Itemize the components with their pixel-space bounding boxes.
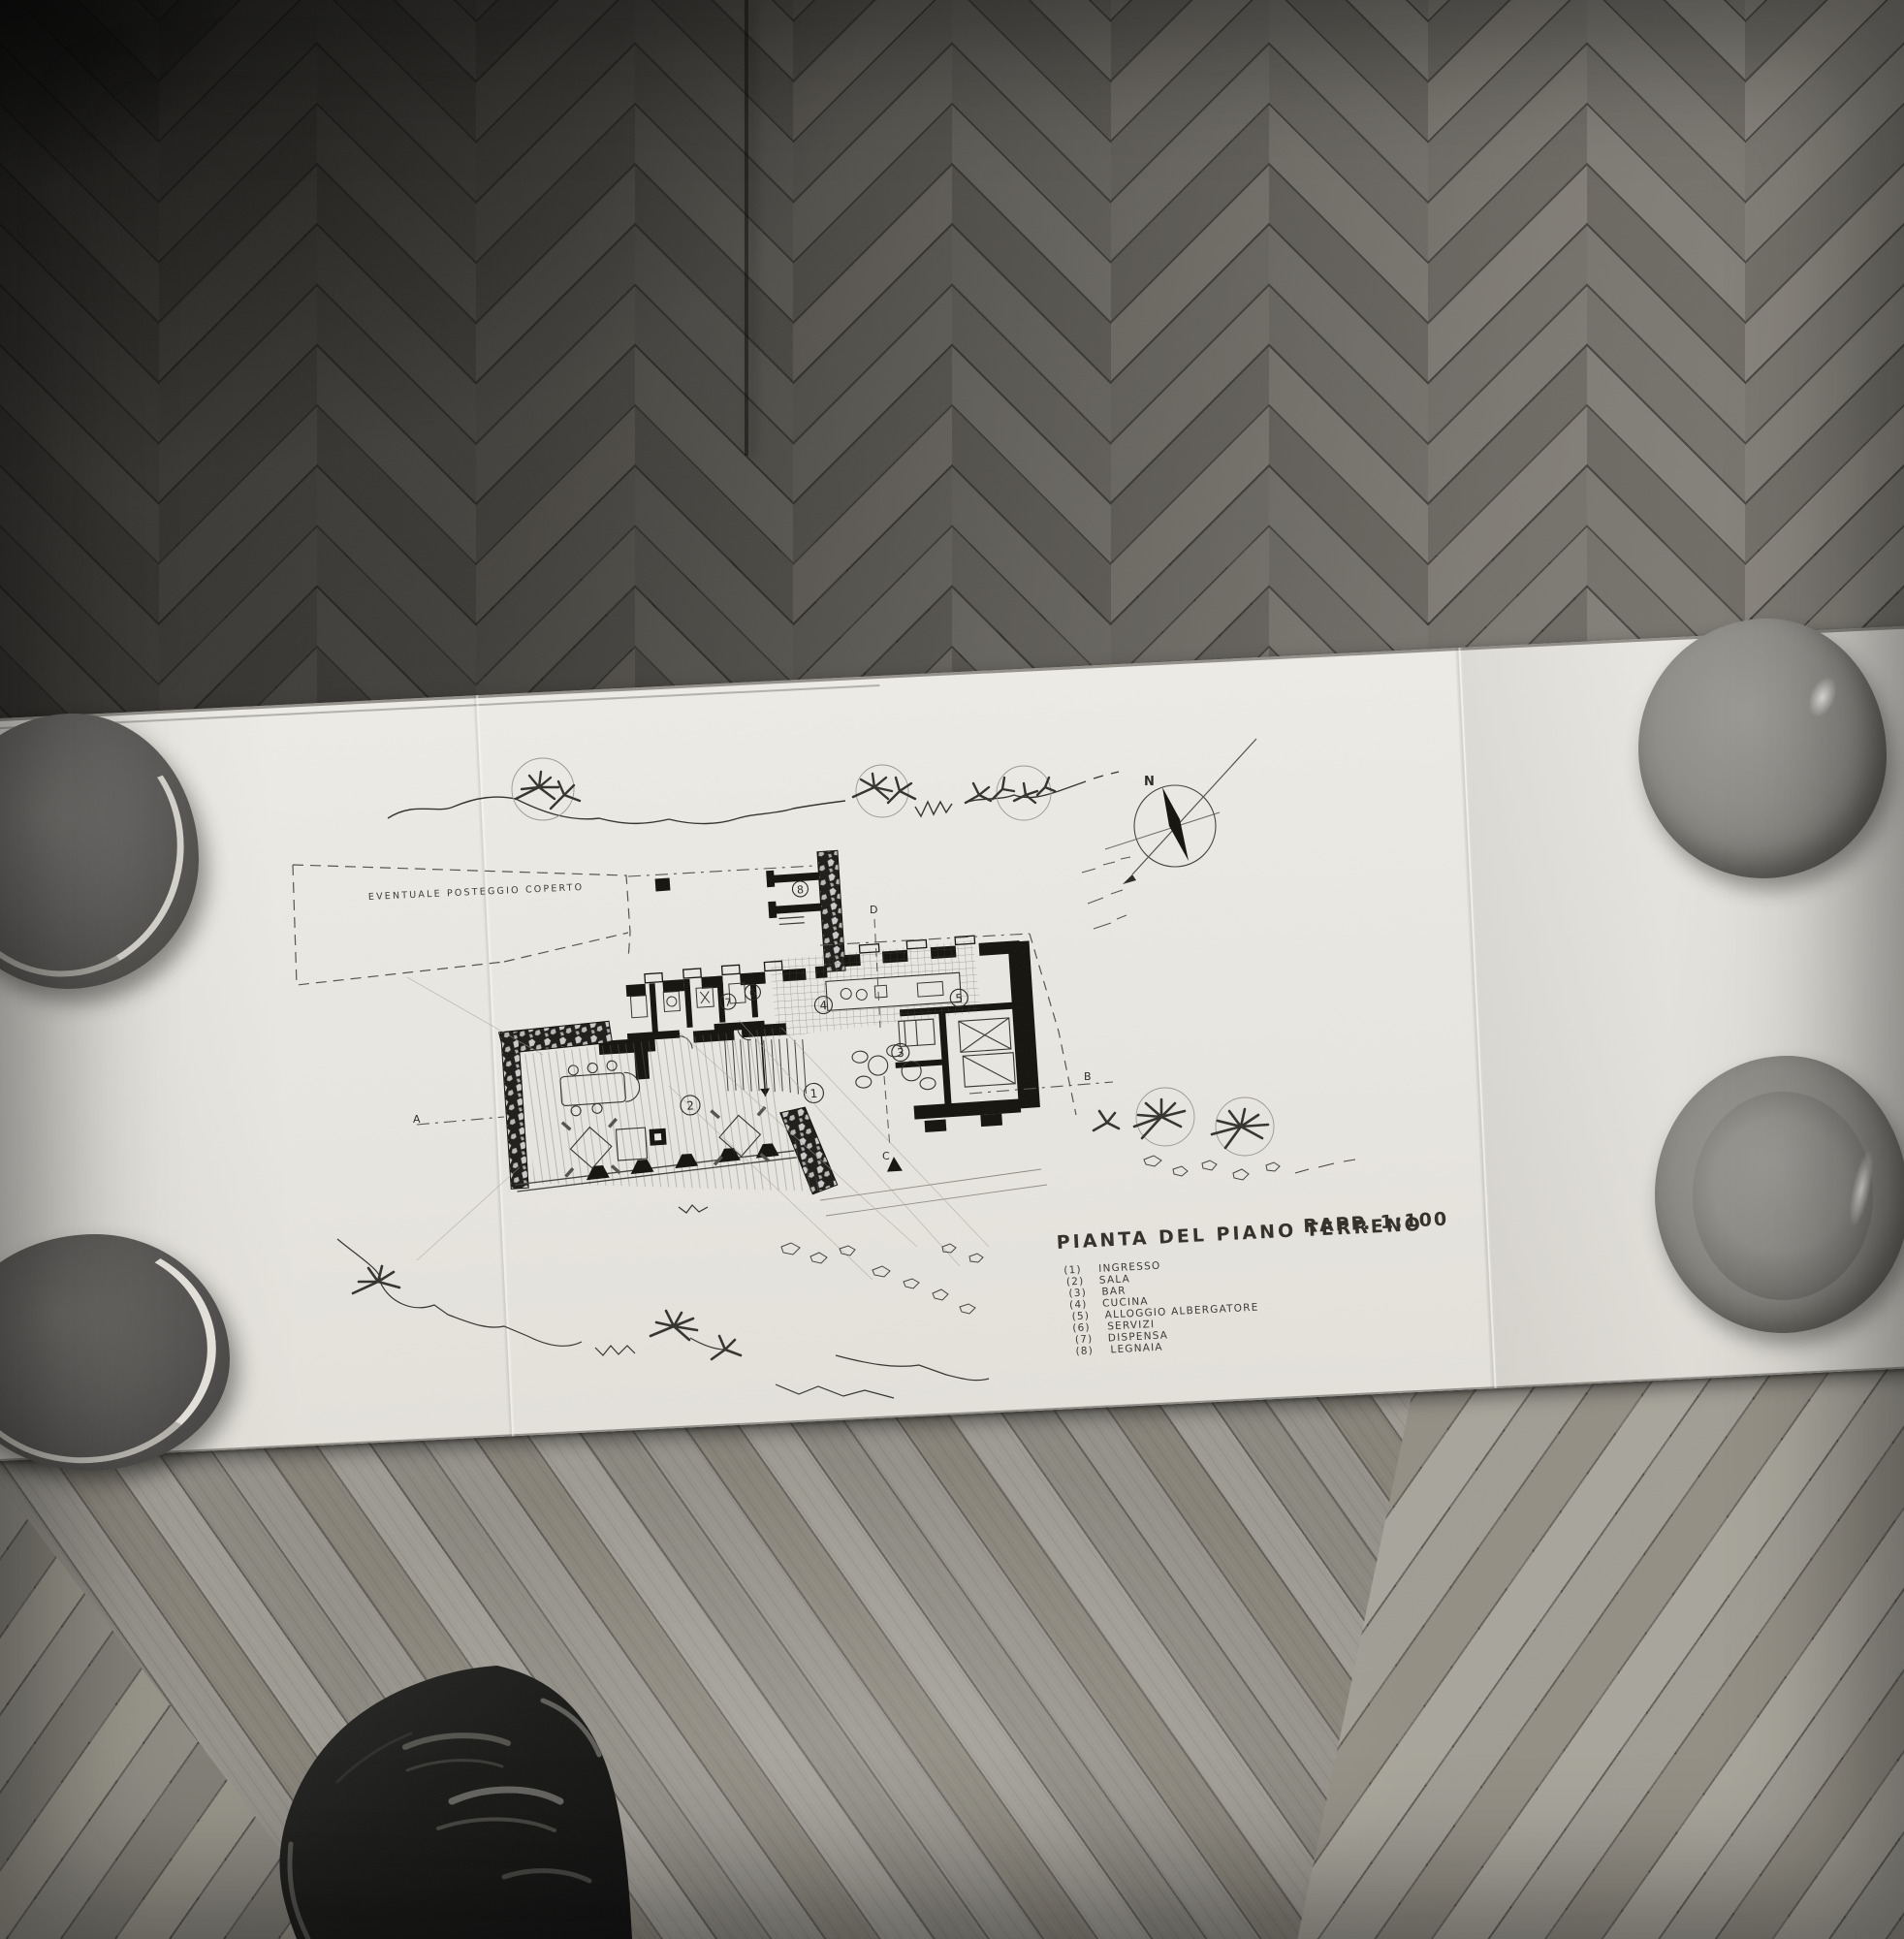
shoe-tip [0, 0, 1904, 1939]
photo-plan-on-parquet: N EVENTUALE POSTEGGIO COPERTO [0, 0, 1904, 1939]
